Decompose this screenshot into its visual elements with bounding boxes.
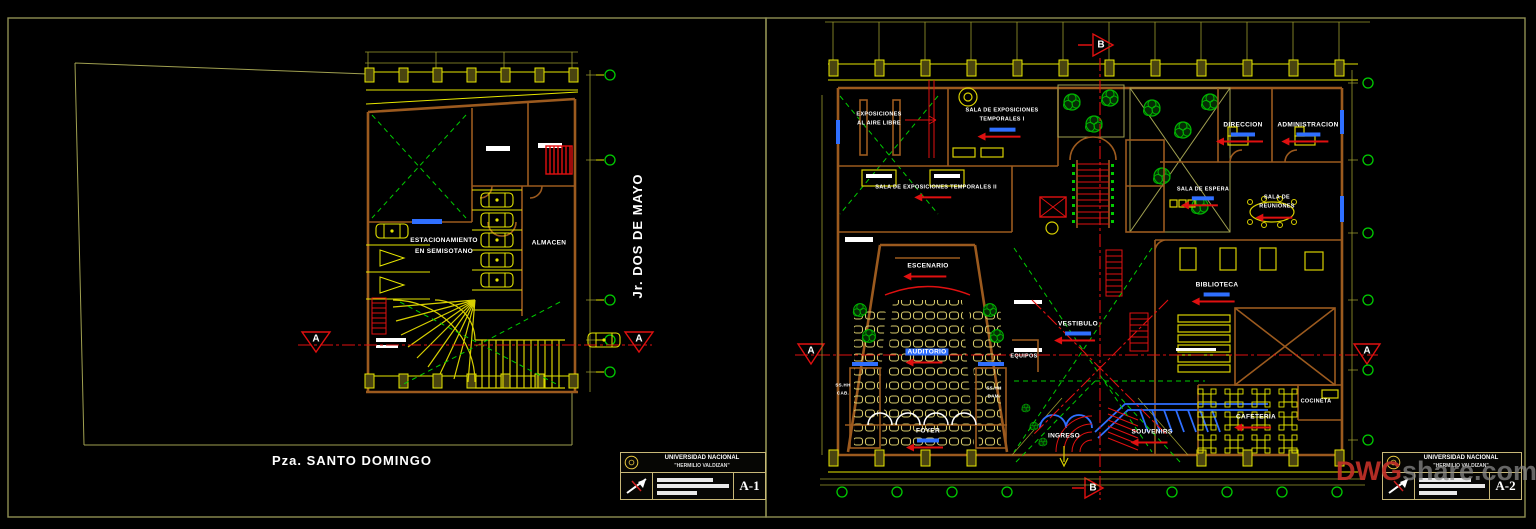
room-label-sala-espera: SALA DE ESPERA (1177, 185, 1229, 206)
field-bar (657, 484, 729, 488)
label-arrow (1199, 301, 1235, 303)
section-marker-b-bottom: B (1089, 483, 1096, 494)
label-arrow (910, 276, 946, 278)
label-bar (989, 127, 1015, 131)
room-label-souvenirs: SOUVENIRS (1132, 426, 1173, 443)
label-arrow (1188, 205, 1218, 207)
room-label-foyer: FOYER (913, 425, 943, 448)
sheet-number-a1: A-1 (734, 473, 765, 499)
room-label-text: SALA DE ESPERA (1177, 186, 1229, 192)
label-bar (917, 439, 939, 443)
room-label-vestibulo: VESTIBULO (1058, 318, 1098, 341)
plaza-label: Pza. SANTO DOMINGO (272, 450, 432, 472)
north-arrow-icon (621, 473, 653, 499)
label-arrow (921, 197, 951, 199)
titleblock-fields (653, 473, 734, 499)
room-label-text: FOYER (916, 427, 940, 434)
room-label-text: BIBLIOTECA (1196, 281, 1239, 288)
room-label-text: SALA DE REUNIONES (1259, 195, 1294, 210)
titleblock-header: UNIVERSIDAD NACIONAL "HERMILIO VALDIZAN" (621, 453, 765, 473)
field-bar (1419, 491, 1457, 495)
cad-canvas: ESTACIONAMIENTO EN SEMISOTANO ALMACEN Pz… (0, 0, 1536, 529)
room-label-sshh-dam: SS.HH DAM. (986, 384, 1001, 399)
room-label-ingreso: INGRESO (1048, 430, 1080, 441)
label-bar (1296, 133, 1320, 137)
field-bar (657, 491, 697, 495)
room-label-administracion: ADMINISTRACION (1277, 119, 1338, 142)
room-label-text: ADMINISTRACION (1277, 121, 1338, 128)
label-arrow (984, 135, 1020, 137)
room-label-almacen: ALMACEN (532, 237, 567, 248)
watermark-prefix: DWG (1336, 456, 1402, 486)
room-label-direccion: DIRECCION (1223, 119, 1263, 142)
room-label-estacionamiento: ESTACIONAMIENTO EN SEMISOTANO (410, 235, 477, 257)
section-marker-b-top: B (1097, 40, 1104, 51)
room-label-text: SALA DE EXPOSICIONES TEMPORALES I (965, 108, 1038, 123)
room-label-text: EXPOSICIONES AL AIRE LIBRE (856, 112, 901, 127)
titleblock-a1: UNIVERSIDAD NACIONAL "HERMILIO VALDIZAN"… (620, 452, 766, 500)
room-label-biblioteca: BIBLIOTECA (1196, 279, 1239, 302)
watermark-suffix: share.com (1402, 456, 1536, 486)
university-line2: "HERMILIO VALDIZAN" (642, 463, 762, 470)
room-label-sala-reuniones: SALA DE REUNIONES (1259, 194, 1294, 219)
watermark: DWGshare.com (1336, 456, 1536, 487)
room-label-escenario: ESCENARIO (907, 260, 948, 277)
label-arrow (1137, 442, 1167, 444)
room-label-text: VESTIBULO (1058, 320, 1098, 327)
room-label-expo-temp1: SALA DE EXPOSICIONES TEMPORALES I (965, 107, 1038, 138)
field-bar (657, 478, 713, 482)
room-label-expo-aire: EXPOSICIONES AL AIRE LIBRE (856, 111, 901, 130)
label-arrow (1061, 340, 1095, 342)
section-marker-a2-right: A (1363, 346, 1370, 357)
label-arrow (912, 362, 942, 364)
room-label-text: AUDITORIO (905, 348, 948, 355)
room-label-sshh-cab: SS.HH CAB. (835, 381, 850, 396)
room-label-text: SOUVENIRS (1132, 428, 1173, 435)
room-label-cafeteria: CAFETERIA (1236, 411, 1276, 428)
section-marker-a-right: A (635, 334, 642, 345)
room-label-text: ESCENARIO (907, 262, 948, 269)
university-logo-icon (624, 455, 639, 470)
label-arrow (1262, 216, 1292, 218)
section-marker-a2-left: A (807, 346, 814, 357)
section-marker-a-left: A (312, 334, 319, 345)
label-arrow (913, 447, 943, 449)
cad-linework (0, 0, 1536, 529)
room-label-cocineta: COCINETA (1301, 397, 1332, 406)
room-label-expo-temp2: SALA DE EXPOSICIONES TEMPORALES II (875, 183, 997, 198)
label-bar (1231, 133, 1255, 137)
room-label-equipos: EQUIPOS (1010, 352, 1037, 361)
room-label-text: CAFETERIA (1236, 413, 1276, 420)
label-arrow (1288, 141, 1328, 143)
room-label-text: SALA DE EXPOSICIONES TEMPORALES II (875, 184, 997, 190)
university-line1: UNIVERSIDAD NACIONAL (642, 455, 762, 463)
label-arrow (1223, 141, 1263, 143)
titleblock-body: A-1 (621, 473, 765, 499)
room-label-text: DIRECCION (1223, 121, 1262, 128)
label-bar (1192, 197, 1214, 201)
street-label: Jr. DOS DE MAYO (627, 173, 649, 298)
label-bar (1065, 332, 1091, 336)
label-arrow (1241, 427, 1271, 429)
label-bar (1204, 293, 1230, 297)
room-label-auditorio: AUDITORIO (905, 346, 948, 363)
university-name: UNIVERSIDAD NACIONAL "HERMILIO VALDIZAN" (642, 455, 762, 469)
